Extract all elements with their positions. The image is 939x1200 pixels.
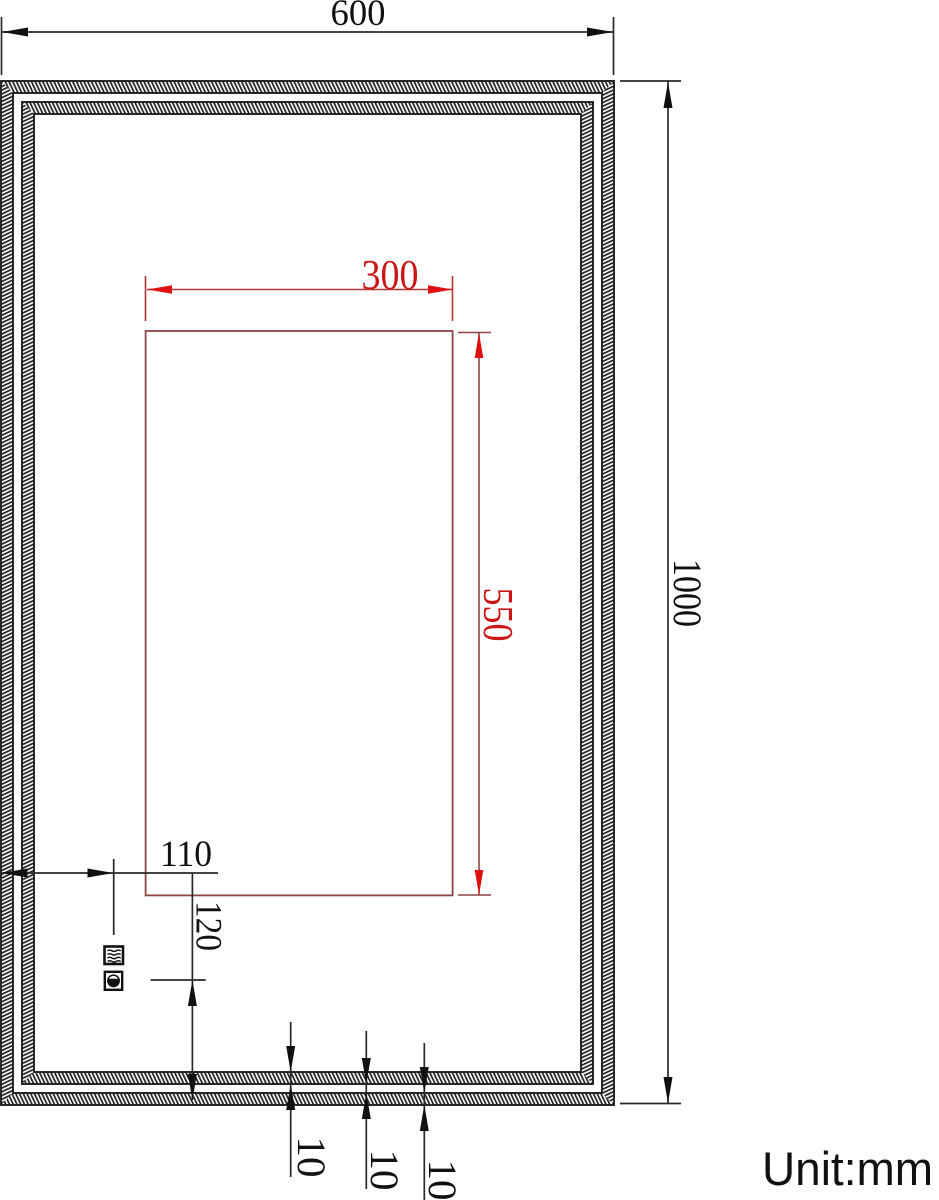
svg-text:10: 10 bbox=[362, 1150, 407, 1191]
svg-text:10: 10 bbox=[289, 1137, 334, 1178]
svg-text:600: 600 bbox=[331, 0, 386, 34]
svg-text:110: 110 bbox=[160, 834, 212, 875]
svg-text:Unit:mm: Unit:mm bbox=[762, 1142, 933, 1195]
svg-text:120: 120 bbox=[188, 901, 229, 951]
svg-text:10: 10 bbox=[420, 1160, 465, 1200]
svg-text:300: 300 bbox=[362, 253, 419, 299]
svg-text:550: 550 bbox=[474, 588, 520, 642]
svg-text:1000: 1000 bbox=[665, 559, 710, 627]
